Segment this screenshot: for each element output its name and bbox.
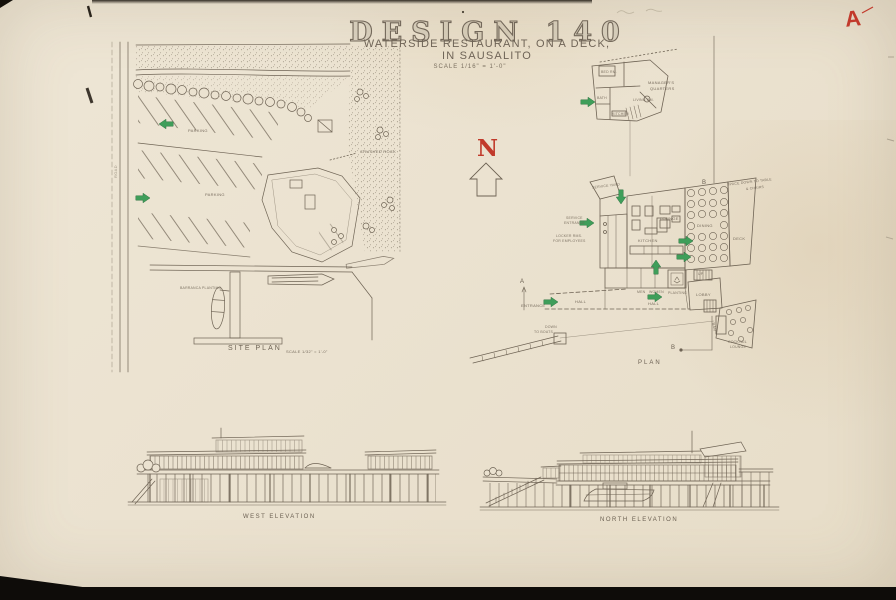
- west-elevation-caption: WEST ELEVATION: [243, 514, 316, 522]
- label-living-rm: LIVING RM.: [633, 98, 654, 102]
- label-cocktail-1: COCKTAIL: [728, 340, 747, 344]
- north-letter: N: [477, 135, 498, 164]
- label-parking-1: PARKING: [188, 128, 208, 133]
- north-elevation-drawing: [480, 431, 779, 510]
- label-hall-2: HALL: [648, 301, 659, 306]
- grade-tick-mark: [862, 7, 873, 13]
- scanned-drawing-sheet: DESIGN 140 WATERSIDE RESTAURANT, ON A DE…: [0, 0, 896, 600]
- label-lobby: LOBBY: [696, 292, 711, 297]
- section-marker-b-bottom: B: [671, 345, 676, 353]
- label-service-1: SERVICE: [566, 216, 583, 220]
- label-managers-quarters-2: QUARTERS: [650, 86, 675, 91]
- label-service-2: ENTRANCE: [564, 221, 585, 225]
- label-women: WOMEN: [649, 290, 664, 294]
- grade-mark: A: [844, 4, 863, 33]
- managers-quarters-drawing: [581, 49, 678, 176]
- section-marker-a: A: [520, 279, 525, 287]
- label-down: DOWN: [545, 325, 557, 329]
- section-marker-b-top: B: [702, 180, 707, 188]
- site-plan-drawing: [112, 42, 400, 372]
- floor-plan-drawing: [470, 36, 756, 363]
- label-up: UP: [698, 272, 703, 276]
- label-managers-quarters-1: MANAGER'S: [648, 80, 674, 85]
- label-dining: DINING: [697, 223, 713, 228]
- label-crushed-rock: CRUSHED ROCK: [360, 149, 396, 154]
- scan-edge-bottom: [0, 587, 896, 600]
- plan-caption: PLAN: [638, 360, 662, 368]
- north-elevation-caption: NORTH ELEVATION: [600, 517, 678, 525]
- drawing-linework: [0, 0, 896, 600]
- sheet-scale-note: SCALE 1/16" = 1'-0": [434, 64, 507, 72]
- site-plan-scale: SCALE 1/32" = 1'-0": [286, 349, 328, 354]
- sheet-subtitle-line2: IN SAUSALITO: [442, 50, 532, 64]
- label-barranca-planting: BARRANCA PLANTING: [180, 286, 221, 290]
- label-lounge: LOUNGE: [660, 216, 679, 221]
- label-kitchen: KITCHEN: [638, 238, 658, 243]
- west-elevation-drawing: [128, 428, 446, 505]
- label-bed-rm: BED RM.: [601, 70, 617, 74]
- label-road: ROAD: [113, 165, 118, 178]
- label-bath: BATH: [597, 96, 607, 100]
- label-quarters-kitchen: KITCHEN: [612, 112, 629, 116]
- label-hall-1: HALL: [575, 299, 586, 304]
- label-planting: PLANTING: [668, 291, 687, 295]
- label-lockers-1: LOCKER RMS.: [556, 234, 582, 238]
- label-entrance: ENTRANCE: [521, 303, 545, 308]
- label-lockers-2: FOR EMPLOYEES: [553, 239, 586, 243]
- label-men: MEN: [637, 290, 645, 294]
- label-to-boats: TO BOATS: [534, 330, 553, 334]
- north-arrow-icon: [470, 163, 502, 196]
- pencil-note-scribble: [617, 9, 662, 13]
- site-plan-caption: SITE PLAN: [228, 345, 282, 354]
- label-deck: DECK: [733, 236, 745, 241]
- label-cocktail-2: LOUNGE: [730, 345, 746, 349]
- label-parking-2: PARKING: [205, 192, 225, 197]
